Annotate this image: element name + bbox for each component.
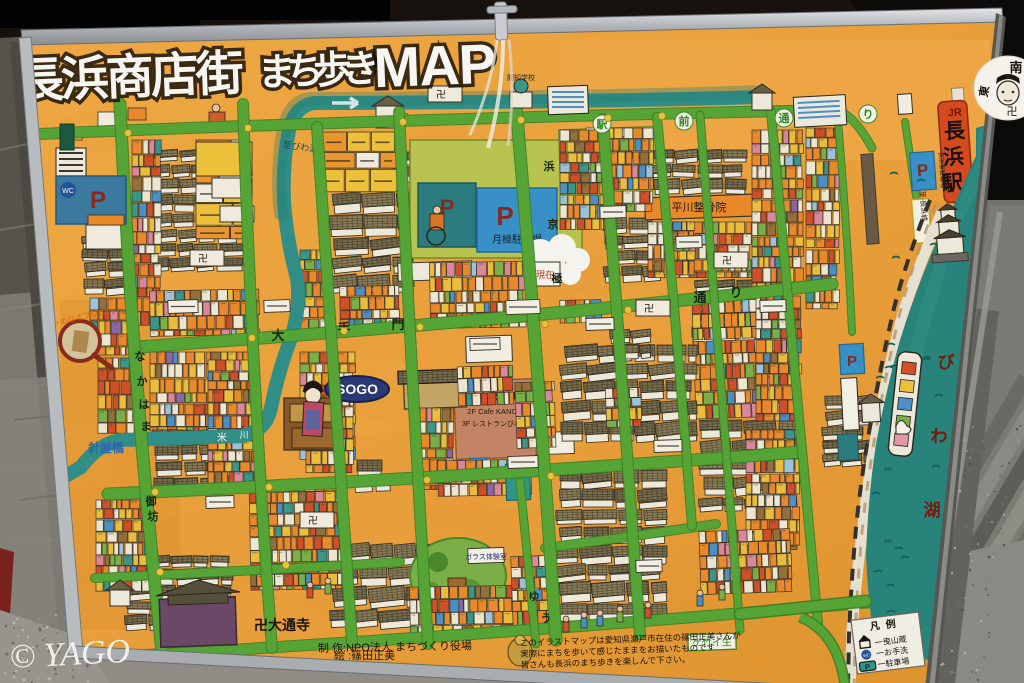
svg-text:南: 南 [1009,60,1022,75]
svg-text:卍: 卍 [1007,105,1018,118]
svg-text:© YAGO: © YAGO [8,633,131,676]
